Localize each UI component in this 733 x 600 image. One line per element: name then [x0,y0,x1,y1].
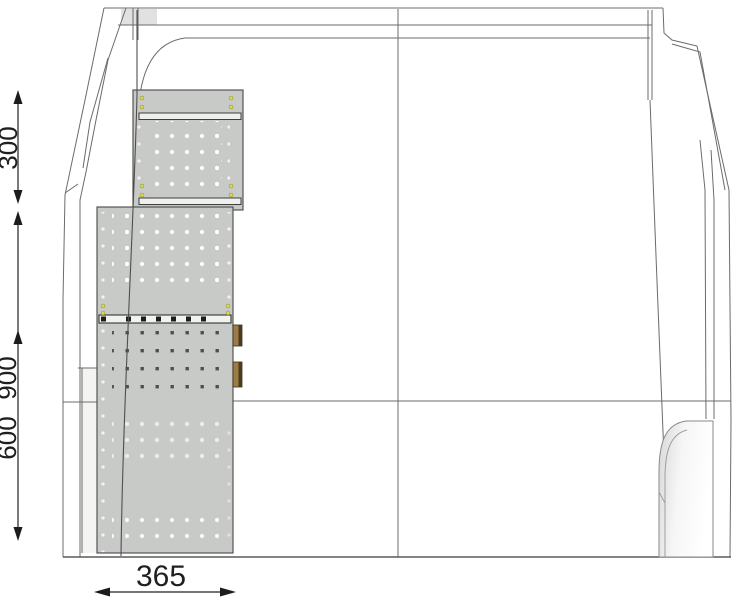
dimension-300: 300 [0,90,23,204]
dimension-600-label: 600 [0,416,22,459]
rack-main-panel [97,207,233,553]
left-step-panel [78,368,97,553]
dimension-900: 900 [0,211,23,541]
mounting-brackets [233,325,242,387]
dimension-900-label: 900 [0,356,22,399]
rack-top-cabinet [133,90,243,210]
dimension-365-label: 365 [136,560,186,593]
dimension-300-label: 300 [0,126,23,169]
shelf-rail [99,315,231,323]
roof-corner-shade [121,9,157,25]
wheel-arch [659,421,713,557]
technical-drawing-canvas: 300 900 600 365 [0,0,733,600]
dimension-365: 365 [94,560,236,597]
van-racking-side-elevation: 300 900 600 365 [0,0,733,600]
